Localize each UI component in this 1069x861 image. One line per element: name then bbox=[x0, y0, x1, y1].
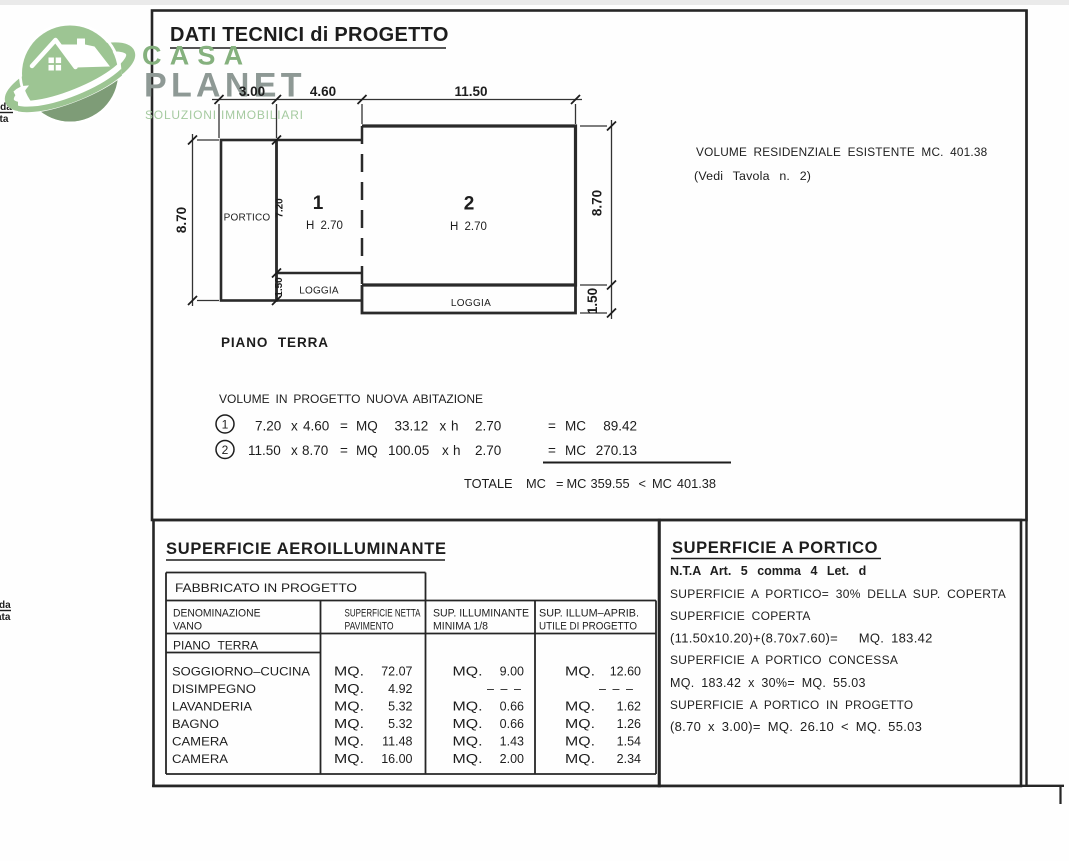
svg-text:11.50: 11.50 bbox=[454, 84, 487, 99]
svg-text:VOLUME IN PROGETTO NUOVA ABITA: VOLUME IN PROGETTO NUOVA ABITAZIONE bbox=[219, 392, 483, 406]
svg-text:1: 1 bbox=[313, 193, 324, 214]
svg-text:5.32: 5.32 bbox=[388, 717, 412, 731]
svg-text:MQ.: MQ. bbox=[334, 682, 364, 696]
svg-text:SUPERFICIE A PORTICO IN PROGET: SUPERFICIE A PORTICO IN PROGETTO bbox=[670, 698, 913, 712]
svg-text:VANO: VANO bbox=[173, 621, 202, 633]
svg-text:SUPERFICIE AEROILLUMINANTE: SUPERFICIE AEROILLUMINANTE bbox=[166, 540, 447, 558]
svg-text:2.34: 2.34 bbox=[617, 752, 641, 766]
svg-text:–––: ––– bbox=[487, 682, 521, 696]
svg-text:DISIMPEGNO: DISIMPEGNO bbox=[172, 682, 256, 696]
svg-text:MQ.: MQ. bbox=[565, 735, 595, 749]
svg-text:(11.50x10.20)+(8.70x7.60)= M: (11.50x10.20)+(8.70x7.60)= MQ. 183.42 bbox=[670, 631, 933, 646]
svg-text:MQ.: MQ. bbox=[453, 700, 483, 714]
svg-text:H 2.70: H 2.70 bbox=[306, 220, 343, 232]
svg-text:MINIMA 1/8: MINIMA 1/8 bbox=[433, 621, 488, 633]
svg-text:PLANET: PLANET bbox=[144, 67, 306, 105]
svg-text:MQ.: MQ. bbox=[565, 752, 595, 766]
svg-text:CAMERA: CAMERA bbox=[172, 752, 228, 766]
svg-text:MQ.: MQ. bbox=[453, 665, 483, 679]
svg-text:FABBRICATO IN PROGETTO: FABBRICATO IN PROGETTO bbox=[175, 581, 357, 595]
svg-text:MQ.: MQ. bbox=[334, 700, 364, 714]
svg-text:LOGGIA: LOGGIA bbox=[451, 298, 491, 309]
svg-text:–––: ––– bbox=[599, 682, 633, 696]
svg-text:LOGGIA: LOGGIA bbox=[299, 286, 339, 297]
svg-text:12.60: 12.60 bbox=[610, 665, 641, 679]
svg-text:SUPERFICIE COPERTA: SUPERFICIE COPERTA bbox=[670, 609, 811, 623]
svg-text:SOGGIORNO–CUCINA: SOGGIORNO–CUCINA bbox=[172, 665, 310, 679]
svg-text:CAMERA: CAMERA bbox=[172, 735, 228, 749]
svg-text:DENOMINAZIONE: DENOMINAZIONE bbox=[173, 608, 261, 620]
svg-text:PORTICO: PORTICO bbox=[224, 213, 271, 224]
svg-text:8.70: 8.70 bbox=[174, 207, 189, 233]
svg-text:1.62: 1.62 bbox=[617, 700, 641, 714]
svg-text:MQ.: MQ. bbox=[565, 700, 595, 714]
svg-text:BAGNO: BAGNO bbox=[172, 717, 219, 731]
svg-text:MQ. 183.42 x 30%= MQ. 55.03: MQ. 183.42 x 30%= MQ. 55.03 bbox=[670, 676, 866, 690]
svg-text:4.60: 4.60 bbox=[310, 84, 336, 99]
svg-text:7.20: 7.20 bbox=[275, 198, 286, 218]
svg-text:PIANO TERRA: PIANO TERRA bbox=[173, 639, 258, 653]
svg-text:MQ.: MQ. bbox=[565, 717, 595, 731]
svg-text:SUP. ILLUM–APRIB.: SUP. ILLUM–APRIB. bbox=[539, 608, 639, 620]
svg-text:0.66: 0.66 bbox=[500, 700, 524, 714]
svg-text:SUPERFICIE A PORTICO CONCESSA: SUPERFICIE A PORTICO CONCESSA bbox=[670, 653, 898, 667]
svg-text:1.50: 1.50 bbox=[585, 288, 600, 314]
svg-text:MQ.: MQ. bbox=[334, 665, 364, 679]
svg-text:2: 2 bbox=[464, 194, 475, 215]
svg-text:5.32: 5.32 bbox=[388, 700, 412, 714]
svg-text:16.00: 16.00 bbox=[381, 752, 412, 766]
svg-text:SOLUZIONI IMMOBILIARI: SOLUZIONI IMMOBILIARI bbox=[145, 108, 304, 122]
svg-text:MQ.: MQ. bbox=[453, 735, 483, 749]
svg-text:2.00: 2.00 bbox=[500, 752, 524, 766]
svg-text:MQ.: MQ. bbox=[565, 665, 595, 679]
svg-text:VOLUME RESIDENZIALE ESISTENTE: VOLUME RESIDENZIALE ESISTENTE MC. 401.38 bbox=[696, 145, 988, 159]
svg-text:1.43: 1.43 bbox=[500, 735, 524, 749]
svg-text:4.92: 4.92 bbox=[388, 682, 412, 696]
svg-text:MQ.: MQ. bbox=[334, 752, 364, 766]
svg-text:72.07: 72.07 bbox=[381, 665, 412, 679]
svg-text:(Vedi Tavola n. 2): (Vedi Tavola n. 2) bbox=[694, 169, 811, 183]
svg-text:SUPERFICIE NETTA: SUPERFICIE NETTA bbox=[345, 608, 421, 620]
svg-text:2: 2 bbox=[222, 443, 229, 457]
svg-text:(8.70 x 3.00)= MQ. 26.10 < MQ.: (8.70 x 3.00)= MQ. 26.10 < MQ. 55.03 bbox=[670, 719, 922, 734]
svg-text:MQ.: MQ. bbox=[453, 752, 483, 766]
svg-text:da: da bbox=[0, 600, 11, 611]
svg-text:1.50: 1.50 bbox=[274, 277, 285, 297]
svg-text:ata: ata bbox=[0, 114, 9, 125]
svg-text:9.00: 9.00 bbox=[500, 665, 524, 679]
svg-text:11.48: 11.48 bbox=[382, 735, 412, 749]
svg-text:PAVIMENTO: PAVIMENTO bbox=[345, 621, 394, 633]
svg-text:SUPERFICIE A PORTICO= 30% DELL: SUPERFICIE A PORTICO= 30% DELLA SUP. COP… bbox=[670, 587, 1006, 601]
svg-text:MQ.: MQ. bbox=[334, 717, 364, 731]
svg-text:1.26: 1.26 bbox=[617, 717, 641, 731]
svg-text:1.54: 1.54 bbox=[617, 735, 641, 749]
svg-text:ata: ata bbox=[0, 612, 11, 623]
svg-text:1: 1 bbox=[222, 418, 229, 432]
svg-text:8.70: 8.70 bbox=[590, 190, 605, 216]
svg-text:0.66: 0.66 bbox=[500, 717, 524, 731]
svg-text:LAVANDERIA: LAVANDERIA bbox=[172, 700, 252, 714]
svg-text:3.00: 3.00 bbox=[239, 84, 265, 99]
svg-text:MQ.: MQ. bbox=[334, 735, 364, 749]
svg-text:PIANO TERRA: PIANO TERRA bbox=[221, 335, 329, 350]
svg-text:H 2.70: H 2.70 bbox=[450, 221, 487, 233]
svg-text:N.T.A Art. 5 comma 4 Let. d: N.T.A Art. 5 comma 4 Let. d bbox=[670, 564, 866, 578]
svg-text:SUP. ILLUMINANTE: SUP. ILLUMINANTE bbox=[433, 608, 529, 620]
svg-text:UTILE DI PROGETTO: UTILE DI PROGETTO bbox=[539, 621, 637, 633]
svg-text:TOTALEMC=MC359.55<MC401.38: TOTALEMC=MC359.55<MC401.38 bbox=[464, 476, 716, 491]
svg-text:MQ.: MQ. bbox=[453, 717, 483, 731]
svg-text:SUPERFICIE A PORTICO: SUPERFICIE A PORTICO bbox=[672, 539, 878, 557]
